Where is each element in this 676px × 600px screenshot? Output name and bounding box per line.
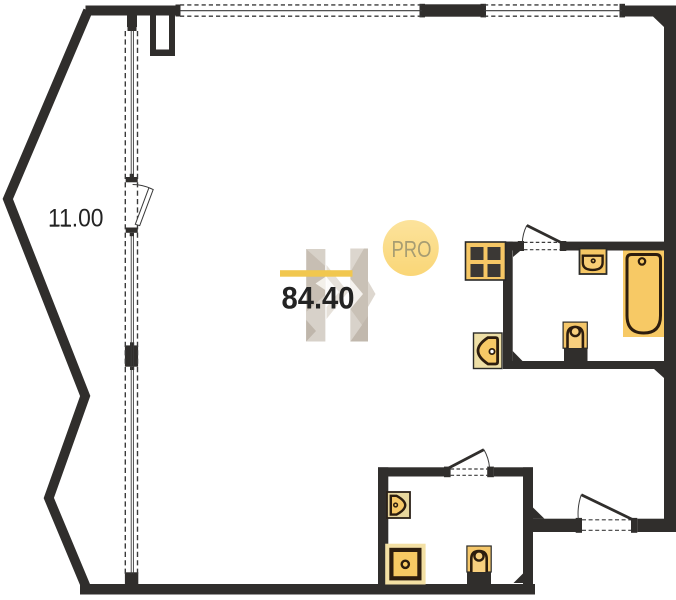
svg-text:11.00: 11.00 (48, 205, 104, 233)
svg-text:84.40: 84.40 (282, 280, 355, 316)
svg-text:PRO: PRO (392, 236, 432, 262)
